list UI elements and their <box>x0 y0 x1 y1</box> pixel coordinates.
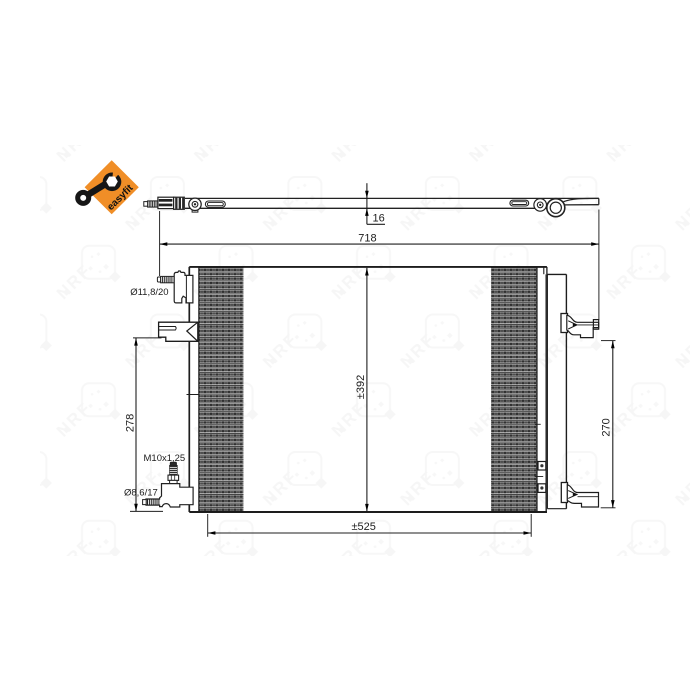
svg-text:16: 16 <box>373 212 385 224</box>
svg-text:Ø11,8/20: Ø11,8/20 <box>130 287 168 298</box>
svg-text:M10x1,25: M10x1,25 <box>144 453 186 464</box>
svg-text:718: 718 <box>358 233 376 245</box>
svg-text:270: 270 <box>600 418 612 436</box>
svg-text:±525: ±525 <box>352 521 376 533</box>
svg-text:Ø8,6/17: Ø8,6/17 <box>124 487 158 498</box>
svg-text:±392: ±392 <box>355 375 367 399</box>
svg-text:278: 278 <box>125 414 137 432</box>
